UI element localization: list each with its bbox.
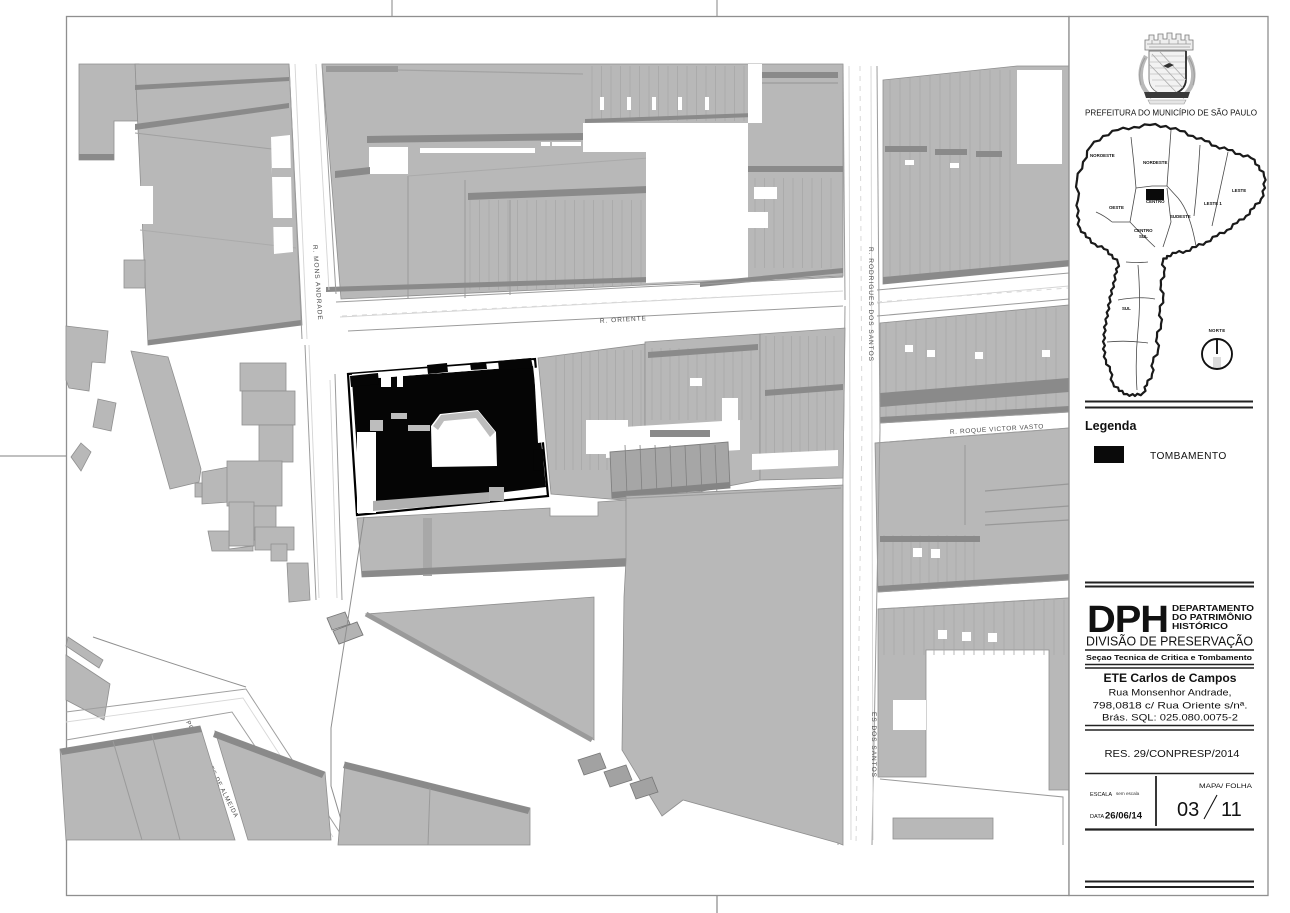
svg-text:RES. 29/CONPRESP/2014: RES. 29/CONPRESP/2014 — [1105, 749, 1240, 760]
svg-text:SUDESTE: SUDESTE — [1170, 214, 1191, 219]
svg-text:DO PATRIMÔNIO: DO PATRIMÔNIO — [1172, 611, 1253, 622]
svg-text:LESTE 1: LESTE 1 — [1204, 201, 1222, 206]
svg-text:sem escala: sem escala — [1116, 791, 1140, 796]
svg-text:MAPA/ FOLHA: MAPA/ FOLHA — [1199, 783, 1253, 790]
svg-text:PREFEITURA DO MUNICÍPIO DE SÃO: PREFEITURA DO MUNICÍPIO DE SÃO PAULO — [1085, 109, 1257, 118]
svg-text:Rua Monsenhor Andrade,: Rua Monsenhor Andrade, — [1109, 688, 1232, 698]
svg-text:NORDESTE: NORDESTE — [1143, 160, 1167, 165]
svg-text:798,0818 c/ Rua Oriente s/nª.: 798,0818 c/ Rua Oriente s/nª. — [1093, 701, 1248, 711]
svg-text:ESCALA: ESCALA — [1090, 792, 1112, 798]
svg-text:LESTE: LESTE — [1232, 188, 1246, 193]
svg-text:NOROESTE: NOROESTE — [1090, 153, 1115, 158]
svg-text:R. RODRIGUES DOS SANTOS: R. RODRIGUES DOS SANTOS — [867, 247, 874, 362]
svg-text:DIVISÃO DE PRESERVAÇÃO: DIVISÃO DE PRESERVAÇÃO — [1086, 634, 1253, 649]
svg-text:OESTE: OESTE — [1109, 205, 1124, 210]
svg-text:ES DOS SANTOS: ES DOS SANTOS — [870, 712, 877, 778]
svg-text:SUL: SUL — [1122, 306, 1131, 311]
svg-text:CENTRO: CENTRO — [1134, 228, 1153, 233]
svg-text:TOMBAMENTO: TOMBAMENTO — [1150, 451, 1227, 462]
svg-text:DATA: DATA — [1090, 814, 1104, 820]
svg-text:Legenda: Legenda — [1085, 419, 1137, 433]
svg-text:Brás. SQL: 025.080.0075-2: Brás. SQL: 025.080.0075-2 — [1102, 713, 1238, 723]
svg-text:NORTE: NORTE — [1209, 328, 1226, 333]
svg-text:03: 03 — [1177, 799, 1199, 821]
svg-text:HISTÓRICO: HISTÓRICO — [1172, 620, 1229, 631]
svg-text:ETE Carlos de Campos: ETE Carlos de Campos — [1104, 673, 1237, 685]
svg-text:11: 11 — [1221, 799, 1242, 821]
svg-text:Seçao Tecnica de Critica e Tom: Seçao Tecnica de Critica e Tombamento — [1086, 653, 1252, 662]
svg-text:CENTRO: CENTRO — [1146, 199, 1165, 204]
svg-text:SUL: SUL — [1139, 234, 1148, 239]
svg-text:26/06/14: 26/06/14 — [1105, 811, 1143, 822]
svg-text:DEPARTAMENTO: DEPARTAMENTO — [1172, 604, 1255, 613]
